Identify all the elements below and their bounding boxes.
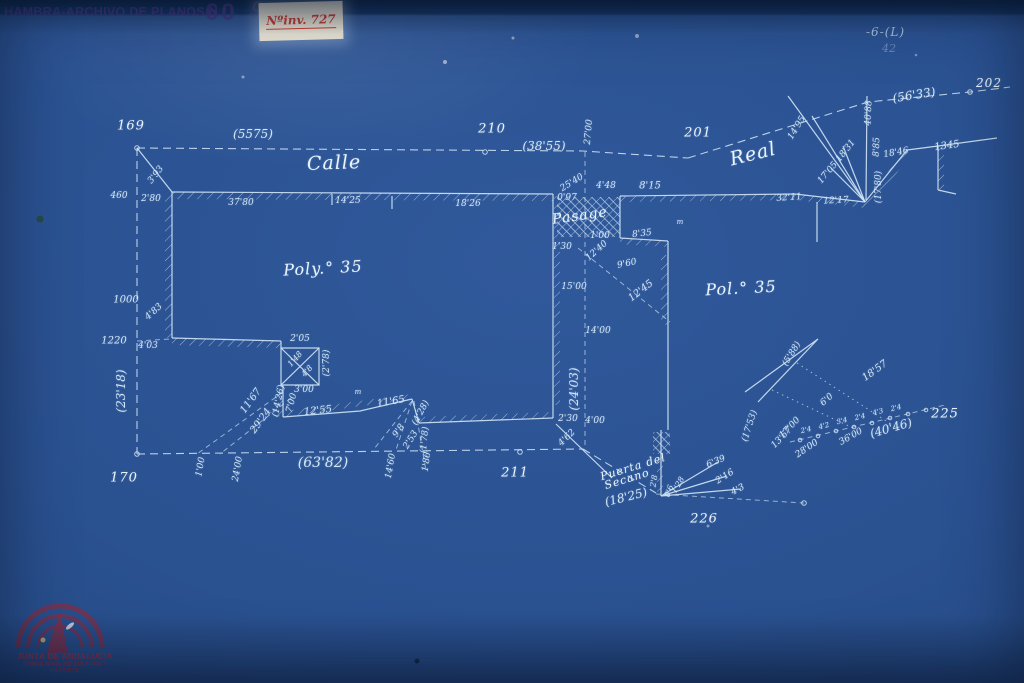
- junta-stamp-line2: CONSEJERÍA DE CULTURA Y DEPORTE: [10, 662, 120, 674]
- plan-linework: [0, 0, 1024, 683]
- blueprint-sheet: HAMBRA-ARCHIVO DE PLANOS N.º 60 9 Nºinv.…: [0, 0, 1024, 683]
- passage-crosshatch: [557, 197, 670, 454]
- junta-stamp: JUNTA DE ANDALUCIA CONSEJERÍA DE CULTURA…: [10, 596, 120, 676]
- junta-stamp-line1: JUNTA DE ANDALUCIA: [10, 652, 120, 661]
- paper-specks: [37, 30, 918, 664]
- building-outlines: [137, 96, 997, 496]
- wall-hatching: [165, 146, 944, 495]
